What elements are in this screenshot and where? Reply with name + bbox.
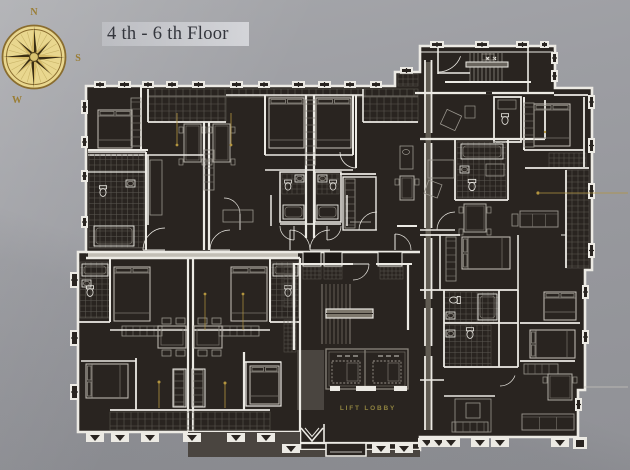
- svg-text:S: S: [75, 53, 81, 64]
- svg-text:LIFT LOBBY: LIFT LOBBY: [340, 405, 396, 412]
- svg-text:N: N: [30, 7, 38, 18]
- svg-text:W: W: [12, 95, 22, 106]
